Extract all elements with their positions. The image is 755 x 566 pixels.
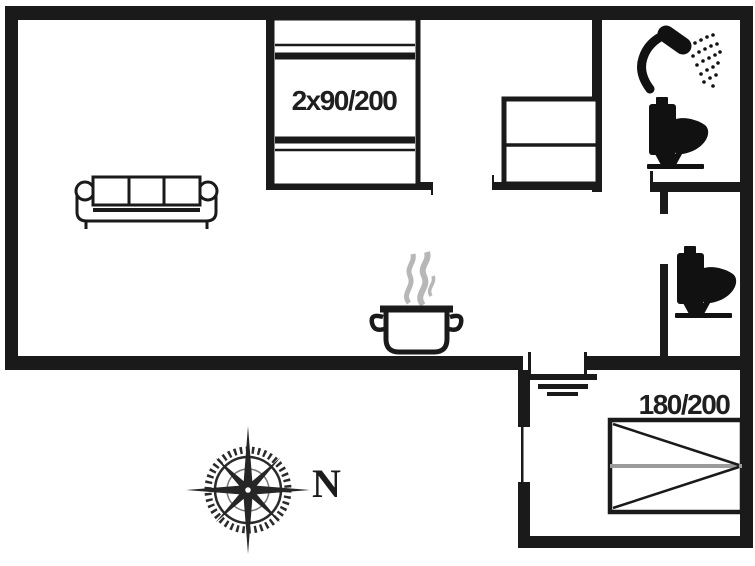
jamb-bedroom-door [431, 182, 433, 195]
sofa-icon [76, 177, 217, 229]
wall-left [5, 6, 18, 370]
wall-bottom-main [5, 356, 523, 370]
floor-plan-drawing: 2x90/200 [0, 0, 755, 566]
wall-annex-bottom [518, 536, 753, 548]
cooking-pot-icon [372, 309, 462, 352]
wardrobe-icon [504, 99, 598, 184]
annex-window-line [521, 427, 524, 482]
jamb-bathroom-door [650, 171, 653, 182]
bed-large-dimension-label: 180/200 [639, 389, 731, 420]
wall-wc-stub [660, 192, 668, 214]
wall-annex-top [586, 356, 753, 370]
bed-2x90-200: 2x90/200 [272, 18, 418, 186]
jamb-annex-door-right [584, 352, 587, 374]
wall-bathroom-bottom [650, 182, 753, 192]
jamb-bedroom-door-right [492, 175, 494, 182]
wall-wc-lower [660, 264, 668, 366]
bed-small-dimension-label: 2x90/200 [292, 85, 398, 116]
jamb-annex-door-left [528, 352, 531, 374]
floor-plan: 2x90/200 [0, 0, 755, 566]
compass-north-label: N [312, 461, 341, 506]
